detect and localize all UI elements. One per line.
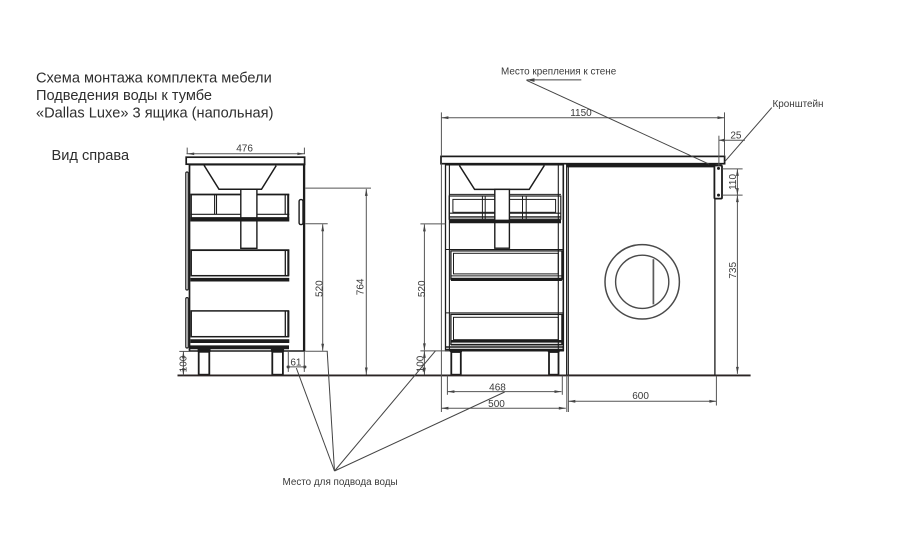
svg-text:520: 520 (314, 280, 325, 297)
svg-text:520: 520 (417, 280, 428, 297)
svg-text:735: 735 (728, 262, 739, 279)
svg-text:Подведения воды к тумбе: Подведения воды к тумбе (36, 88, 212, 104)
svg-text:25: 25 (730, 130, 742, 141)
svg-text:476: 476 (236, 143, 253, 154)
svg-text:Кронштейн: Кронштейн (773, 99, 824, 110)
svg-text:500: 500 (488, 399, 505, 410)
svg-text:Место для подвода воды: Место для подвода воды (283, 477, 398, 488)
svg-text:100: 100 (179, 355, 190, 372)
svg-text:110: 110 (728, 173, 739, 189)
svg-text:600: 600 (632, 391, 649, 402)
svg-text:«Dallas Luxe» 3 ящика (напольн: «Dallas Luxe» 3 ящика (напольная) (36, 105, 273, 121)
svg-text:764: 764 (355, 278, 366, 295)
svg-text:1150: 1150 (570, 108, 592, 119)
svg-text:Место крепления к стене: Место крепления к стене (501, 66, 617, 77)
svg-text:61: 61 (290, 357, 302, 368)
svg-text:468: 468 (489, 382, 506, 393)
svg-text:Схема монтажа комплекта мебели: Схема монтажа комплекта мебели (36, 71, 272, 87)
svg-text:Вид справа: Вид справа (52, 148, 130, 164)
